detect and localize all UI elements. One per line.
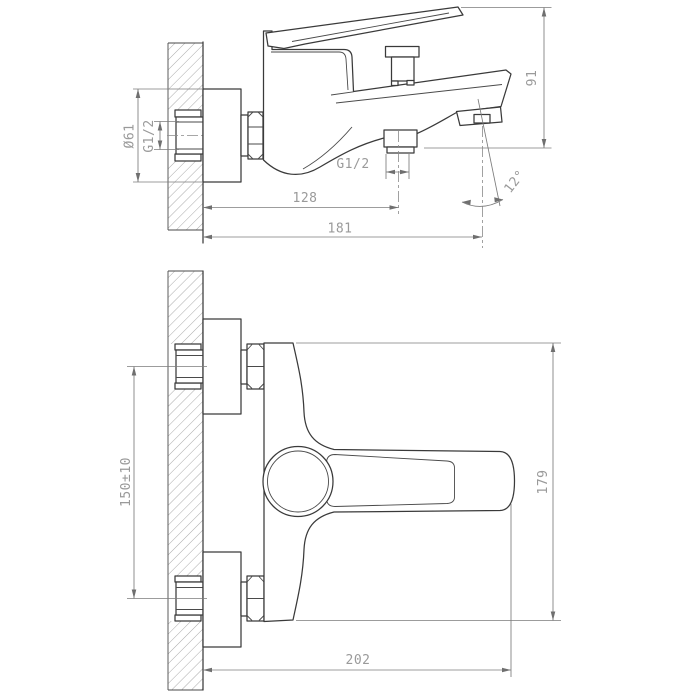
faucet-body-front	[263, 343, 515, 622]
knob-foot-right	[407, 81, 414, 86]
dim-label-height: 91	[525, 70, 540, 87]
dim-inlet-thread: G1/2	[142, 119, 179, 152]
wall-hatch-2	[168, 389, 203, 576]
connection-nut	[241, 112, 263, 159]
connection-nut-top	[241, 344, 264, 389]
shower-outlet	[384, 130, 417, 153]
faucet-installation-drawing: Ø61 G1/2 91 G1/2 128	[0, 0, 700, 700]
wall-hatch-3	[168, 621, 203, 690]
wall-hatch-upper	[168, 43, 203, 110]
nipple-lip	[175, 344, 201, 350]
handle-pivot-cap-outer	[263, 447, 333, 517]
nipple-lip-bottom	[175, 154, 201, 161]
nipple-lip-top	[175, 110, 201, 117]
handle-lever-side	[266, 7, 463, 49]
dim-label-inlet-spacing: 150±10	[119, 457, 134, 507]
dim-label-body-height: 179	[536, 470, 551, 495]
knob-foot-left	[392, 81, 399, 86]
escutcheon-bottom	[203, 552, 241, 647]
outlet-body	[384, 130, 417, 147]
connection-nut-bottom	[241, 576, 264, 621]
nut-ring	[241, 115, 248, 156]
dim-label-wall-to-outlet: 128	[293, 191, 318, 206]
side-view: Ø61 G1/2 91 G1/2 128	[123, 7, 552, 248]
wall-section-front	[168, 271, 203, 690]
escutcheon-top	[203, 319, 241, 414]
dim-label-overall-width: 202	[346, 653, 371, 668]
dim-label-inlet-thread: G1/2	[142, 119, 157, 152]
nut-hex	[248, 112, 263, 159]
nut-ring	[241, 582, 247, 616]
dim-label-spout-angle: 12°	[502, 167, 529, 196]
technical-drawing-page: Ø61 G1/2 91 G1/2 128	[0, 0, 700, 700]
outlet-thread	[387, 147, 414, 153]
wall-hatch-lower	[168, 161, 203, 230]
knob-cap	[386, 47, 420, 58]
dim-label-outlet-thread: G1/2	[336, 157, 369, 172]
diverter-knob	[386, 47, 420, 86]
handle-outline	[266, 7, 463, 49]
nipple-lip	[175, 576, 201, 582]
nipple-lip	[175, 615, 201, 621]
knob-shaft	[392, 57, 415, 81]
escutcheon-flange	[203, 89, 241, 182]
dim-label-flange-diameter: Ø61	[123, 124, 138, 149]
nut-ring	[241, 350, 247, 384]
front-view: 150±10 179 202	[119, 271, 561, 690]
wall-hatch-1	[168, 271, 203, 344]
dim-label-wall-to-tip: 181	[328, 222, 353, 237]
nipple-lip	[175, 383, 201, 389]
